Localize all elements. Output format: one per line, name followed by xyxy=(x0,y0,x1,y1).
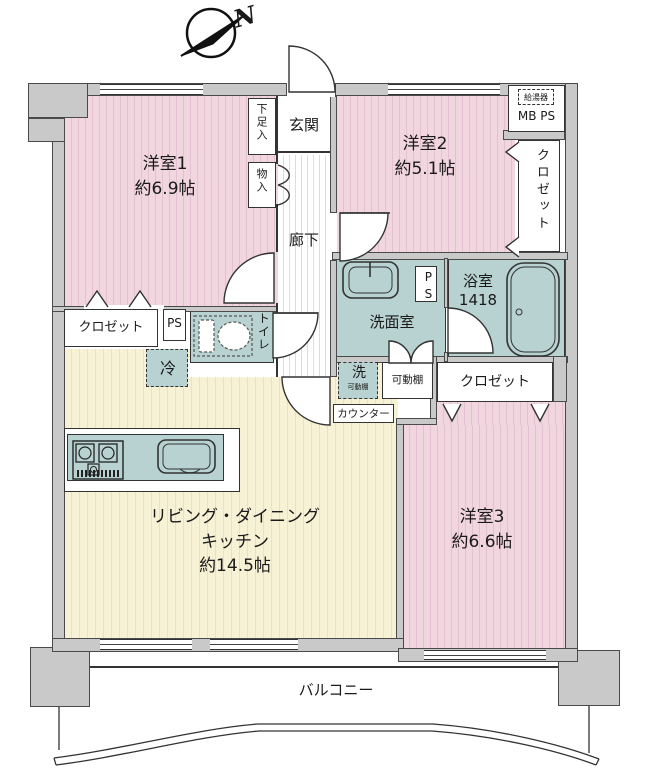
closet2-chevron xyxy=(506,142,519,162)
bedroom2-size: 約5.1帖 xyxy=(355,157,495,182)
closet2-chevron xyxy=(506,237,519,257)
pipe-space-2-label: PS xyxy=(419,270,436,304)
corridor-label: 廊下 xyxy=(282,230,326,252)
closet-bedroom3-label: クロゼット xyxy=(442,372,548,392)
closet1-chevron xyxy=(86,291,108,307)
bedroom1-door-arc xyxy=(224,253,274,303)
ldk-label: リビング・ダイニング キッチン 約14.5帖 xyxy=(130,505,340,579)
closet3-chevron xyxy=(443,404,461,421)
ldk-name-line1: リビング・ダイニング xyxy=(130,505,340,530)
washer-label: 洗 xyxy=(346,363,372,383)
refrigerator-label: 冷 xyxy=(156,357,180,380)
closet1-chevron xyxy=(129,291,151,307)
ldk-door-arc xyxy=(282,377,330,425)
bedroom1-name: 洋室1 xyxy=(95,152,235,177)
bedroom1-label: 洋室1 約6.9帖 xyxy=(95,152,235,201)
toilet-fixture-icon xyxy=(194,316,252,356)
balcony-curl-decoration xyxy=(54,706,599,765)
bedroom2-door-arc xyxy=(340,213,388,261)
toilet-door-arc xyxy=(273,313,318,358)
stove-icon xyxy=(73,441,123,479)
counter-label: カウンター xyxy=(335,407,392,422)
bedroom1-size: 約6.9帖 xyxy=(95,177,235,202)
shoe-cabinet-label: 下足入 xyxy=(253,103,269,142)
movable-shelf-label: 可動棚 xyxy=(384,373,431,388)
pipe-space-1-label: PS xyxy=(163,315,186,332)
bathroom-name: 浴室 xyxy=(446,272,510,291)
bedroom2-label: 洋室2 約5.1帖 xyxy=(355,132,495,181)
bedroom3-size: 約6.6帖 xyxy=(412,530,552,555)
hall-closet-label: 物入 xyxy=(253,168,269,194)
meter-box-label: MB PS xyxy=(509,108,564,125)
washroom-label: 洗面室 xyxy=(352,312,432,334)
washroom-door-left-arc xyxy=(389,341,411,363)
bathroom-label: 浴室 1418 xyxy=(446,272,510,310)
bedroom3-name: 洋室3 xyxy=(412,505,552,530)
floor-plan: 洋室1 約6.9帖 洋室2 約5.1帖 洋室3 約6.6帖 リビング・ダイニング… xyxy=(0,0,649,779)
entrance-door-arc xyxy=(289,46,335,92)
closet3-chevron xyxy=(531,404,549,421)
washroom-door-right-arc xyxy=(411,341,433,363)
bedroom2-name: 洋室2 xyxy=(355,132,495,157)
ldk-size: 約14.5帖 xyxy=(130,554,340,579)
balcony-label: バルコニー xyxy=(276,680,396,702)
hall-closet-fold-mark xyxy=(278,165,289,205)
ldk-name-line2: キッチン xyxy=(130,530,340,555)
kitchen-sink-icon xyxy=(158,440,215,473)
bedroom3-label: 洋室3 約6.6帖 xyxy=(412,505,552,554)
bathroom-door-arc xyxy=(448,308,493,353)
closet-bedroom2-label: クロゼット xyxy=(531,148,550,233)
water-heater-label: 給湯器 xyxy=(519,92,553,104)
bathtub-icon xyxy=(507,263,559,356)
bathroom-size: 1418 xyxy=(446,291,510,310)
entrance-label: 玄関 xyxy=(281,115,327,137)
closet-bedroom1-label: クロゼット xyxy=(66,319,156,338)
washer-note-label: 可動棚 xyxy=(339,382,377,392)
washroom-sink-icon xyxy=(343,262,398,298)
toilet-label: トイレ xyxy=(254,312,271,351)
